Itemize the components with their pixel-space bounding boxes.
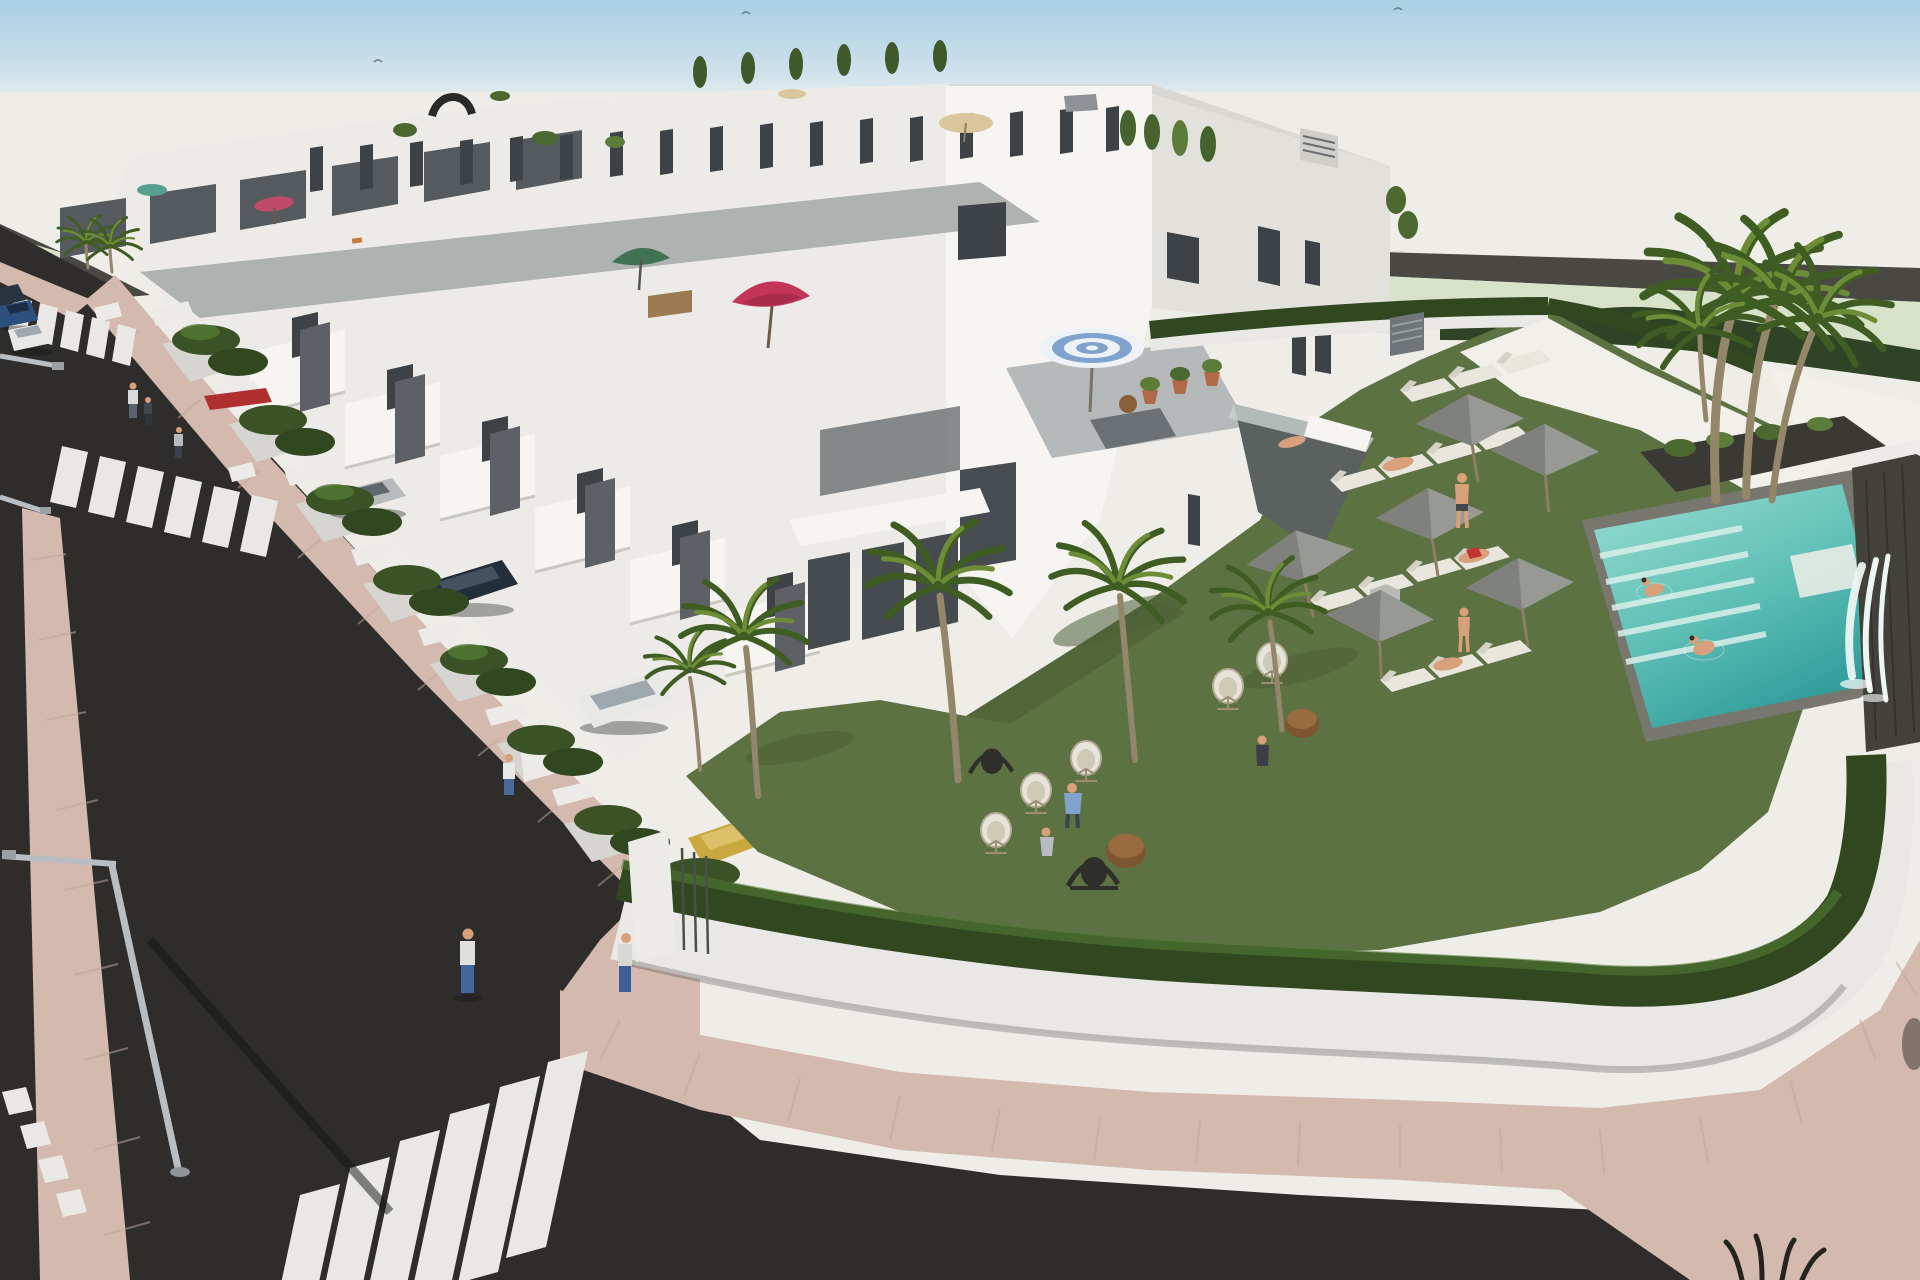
lamp-head (40, 507, 51, 514)
corner-window (958, 202, 1006, 260)
roof-ac-unit (1064, 94, 1098, 112)
umbrella-tan-small (778, 89, 806, 99)
architectural-render (0, 0, 1920, 1280)
lamp-head (52, 362, 64, 370)
pole-base (170, 1167, 190, 1177)
umbrella-teal (137, 184, 167, 196)
gate-pillar (628, 830, 676, 962)
lamp-head (2, 850, 16, 859)
render-image (0, 0, 1920, 1280)
terrace-table (1119, 395, 1137, 413)
